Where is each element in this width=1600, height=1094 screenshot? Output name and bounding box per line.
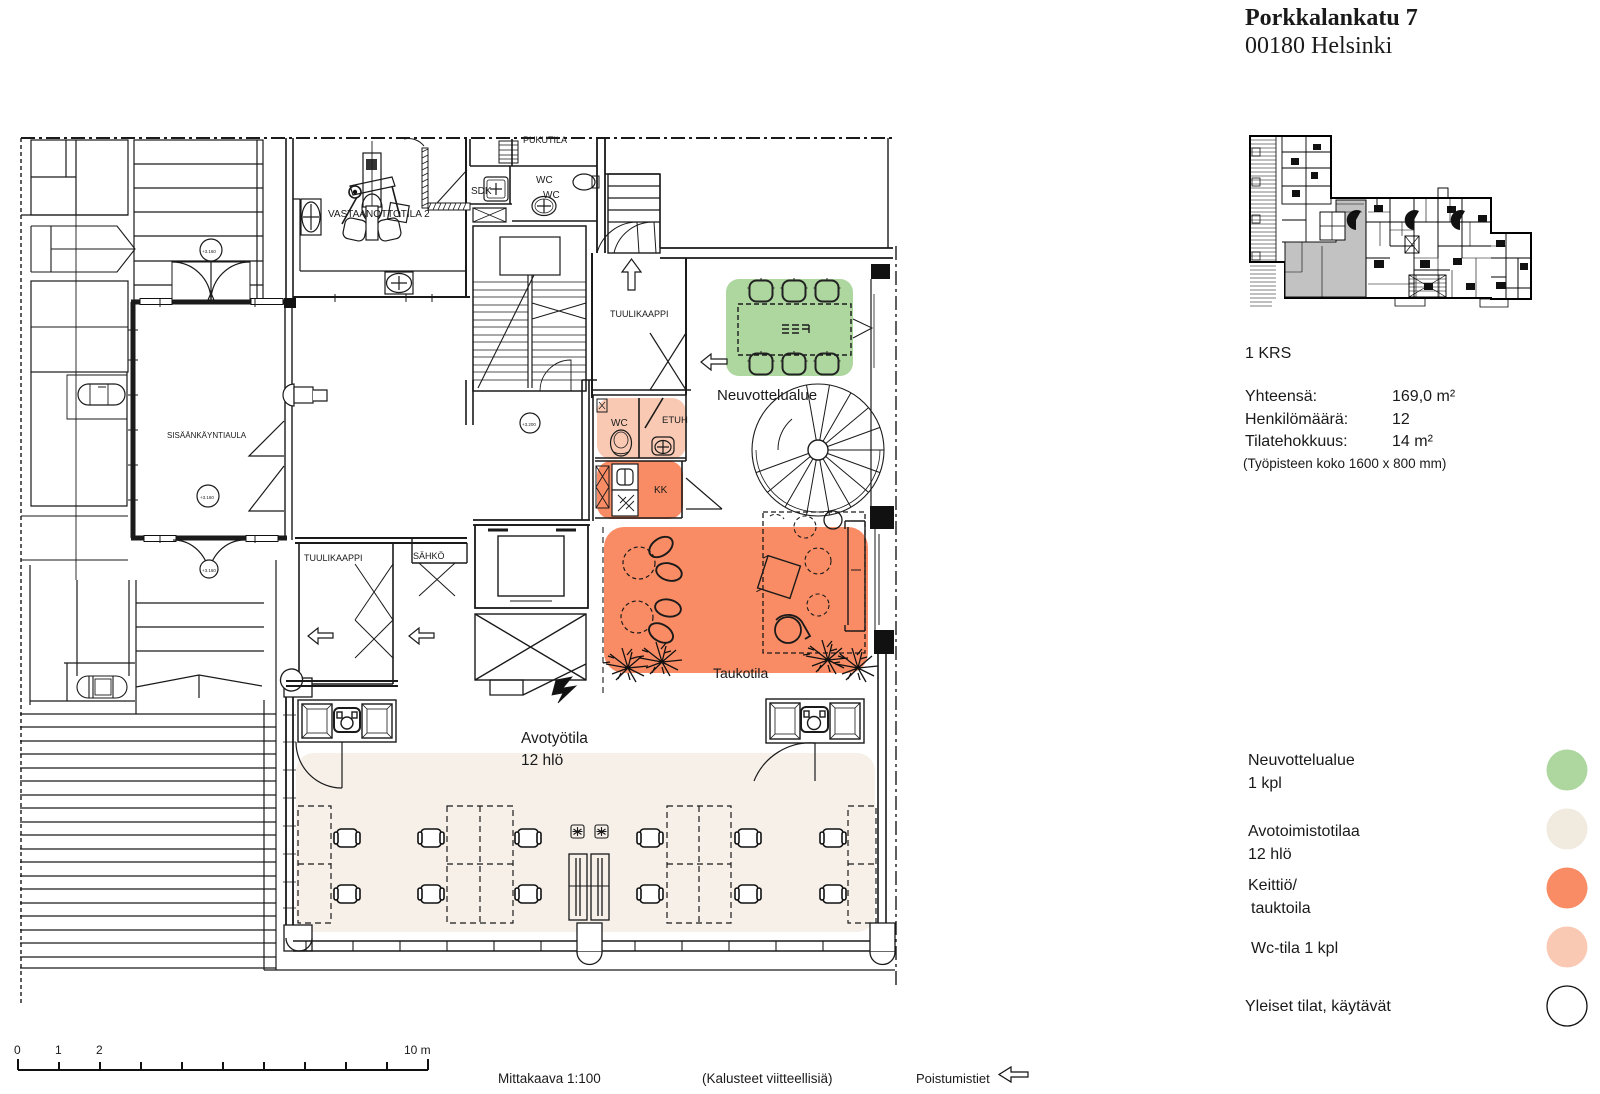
svg-text:Avotoimistotilaa: Avotoimistotilaa — [1248, 823, 1360, 840]
svg-text:+3.200: +3.200 — [522, 422, 536, 427]
svg-text:1 kpl: 1 kpl — [1248, 775, 1282, 792]
svg-text:Avotyötila: Avotyötila — [521, 730, 588, 747]
svg-text:ETUH: ETUH — [662, 415, 688, 426]
svg-text:Yleiset tilat, käytävät: Yleiset tilat, käytävät — [1245, 998, 1391, 1015]
svg-text:(Työpisteen koko 1600 x 800 mm: (Työpisteen koko 1600 x 800 mm) — [1243, 456, 1446, 471]
svg-text:1: 1 — [55, 1043, 62, 1057]
svg-text:Poistumistiet: Poistumistiet — [916, 1071, 990, 1086]
svg-text:+3.160: +3.160 — [200, 495, 214, 500]
svg-text:KK: KK — [654, 485, 668, 496]
svg-text:VASTAANOTTOTILA 2: VASTAANOTTOTILA 2 — [328, 209, 430, 220]
svg-text:12: 12 — [1392, 411, 1410, 428]
svg-text:12 hlö: 12 hlö — [521, 752, 563, 769]
svg-text:SÄHKÖ: SÄHKÖ — [413, 551, 445, 561]
svg-text:169,0 m²: 169,0 m² — [1392, 388, 1456, 405]
svg-text:Taukotila: Taukotila — [713, 665, 768, 681]
svg-text:0: 0 — [14, 1043, 21, 1057]
svg-text:Porkkalankatu 7: Porkkalankatu 7 — [1245, 5, 1418, 31]
svg-text:(Kalusteet viitteellisiä): (Kalusteet viitteellisiä) — [702, 1071, 833, 1086]
svg-text:PUKUTILA: PUKUTILA — [523, 135, 567, 145]
svg-text:Keittiö/: Keittiö/ — [1248, 877, 1297, 894]
svg-text:Neuvottelualue: Neuvottelualue — [717, 387, 817, 404]
svg-text:Wc-tila 1 kpl: Wc-tila 1 kpl — [1251, 940, 1338, 957]
svg-text:WC: WC — [536, 175, 553, 186]
svg-text:WC: WC — [611, 418, 628, 429]
svg-text:SDK: SDK — [471, 186, 492, 197]
svg-text:tauktoila: tauktoila — [1251, 900, 1311, 917]
svg-text:Henkilömäärä:: Henkilömäärä: — [1245, 411, 1348, 428]
svg-text:WC: WC — [543, 190, 560, 201]
svg-text:Yhteensä:: Yhteensä: — [1245, 388, 1317, 405]
svg-text:SISÄÄNKÄYNTIAULA: SISÄÄNKÄYNTIAULA — [167, 431, 247, 440]
svg-text:TUULIKAAPPI: TUULIKAAPPI — [610, 309, 669, 319]
svg-text:00180 Helsinki: 00180 Helsinki — [1245, 33, 1393, 59]
svg-text:+3.160: +3.160 — [202, 249, 216, 254]
svg-text:Mittakaava 1:100: Mittakaava 1:100 — [498, 1071, 601, 1086]
svg-text:+3.160: +3.160 — [202, 568, 216, 573]
svg-text:14 m²: 14 m² — [1392, 433, 1434, 450]
svg-text:10 m: 10 m — [404, 1043, 431, 1057]
svg-text:Neuvottelualue: Neuvottelualue — [1248, 752, 1355, 769]
svg-text:Tilatehokkuus:: Tilatehokkuus: — [1245, 433, 1348, 450]
svg-text:1 KRS: 1 KRS — [1245, 345, 1291, 362]
svg-text:2: 2 — [96, 1043, 103, 1057]
svg-text:TUULIKAAPPI: TUULIKAAPPI — [304, 553, 363, 563]
svg-text:12 hlö: 12 hlö — [1248, 846, 1292, 863]
